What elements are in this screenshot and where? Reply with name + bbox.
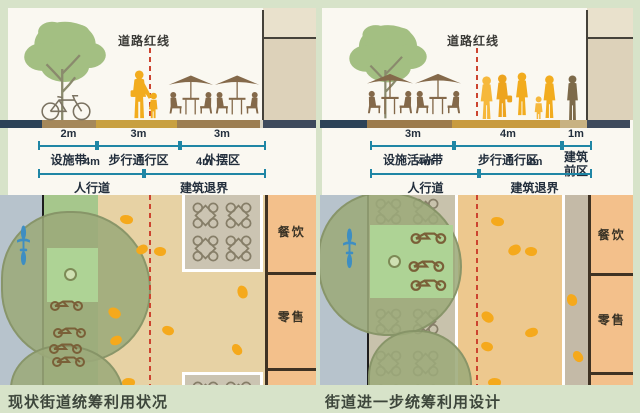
walk-zone-ground xyxy=(96,120,177,128)
dim-facility-belt: 2m 设施带 xyxy=(38,141,99,150)
dim-zone-label: 建筑退界 xyxy=(479,179,590,196)
dim-building-setback: 4m 建筑退界 xyxy=(142,169,266,178)
road-red-line-label: 道路红线 xyxy=(447,32,499,49)
plan-walk-zone xyxy=(458,195,562,385)
panel-improved-design: 道路红线 xyxy=(322,8,633,385)
seating-zone-ground xyxy=(177,120,260,128)
building-floor-line xyxy=(587,37,633,39)
parked-bike-icon xyxy=(408,232,452,245)
parked-bike-icon xyxy=(47,300,89,312)
shop-label-dining: 餐饮 xyxy=(268,223,317,240)
pedestrian-family-icon xyxy=(126,70,164,120)
roadway-ground xyxy=(320,120,367,128)
building-section xyxy=(263,8,316,120)
building-ground xyxy=(263,120,316,128)
building-floor-line xyxy=(263,37,316,39)
dim-zone-label: 人行道 xyxy=(40,179,144,196)
dim-walk-zone: 4m 步行通行区 xyxy=(452,141,564,150)
dim-sidewalk: 4m 人行道 xyxy=(38,169,146,178)
dim-building-setback: 4m 建筑退界 xyxy=(477,169,592,178)
plan-shop-strip: 餐饮 零售 xyxy=(268,195,317,385)
parked-bike-icon xyxy=(406,260,450,273)
seating-area-block xyxy=(182,195,263,272)
shop-label-dining: 餐饮 xyxy=(591,226,634,243)
dim-length: 4m xyxy=(454,128,562,140)
dim-facility-activity-belt: 3m 设施活动带 xyxy=(370,141,456,150)
parked-bike-icon xyxy=(408,279,452,292)
parked-bike-icon xyxy=(46,343,88,355)
roadway-ground xyxy=(0,120,42,128)
pedestrian-marker xyxy=(488,377,502,385)
dim-length: 3m xyxy=(97,128,180,140)
caption-improved: 街道进一步统筹利用设计 xyxy=(325,391,501,412)
shop-label-retail: 零售 xyxy=(591,311,634,328)
dim-length: 4m xyxy=(144,156,264,168)
dim-length: 1m xyxy=(562,128,590,140)
seating-area-block xyxy=(182,372,263,385)
panel-existing-condition: 道路红线 xyxy=(8,8,316,385)
standing-person-icon xyxy=(565,75,580,120)
building-section xyxy=(587,8,633,120)
dim-building-front: 1m 建筑前区 xyxy=(560,141,592,150)
pedestrians-walking-icon xyxy=(479,66,559,120)
building-wall-line xyxy=(262,10,264,120)
cyclist-plan-icon xyxy=(342,228,357,273)
road-red-line xyxy=(476,48,478,120)
dim-outdoor-seating: 3m 外摆区 xyxy=(178,141,266,150)
facility-belt-ground xyxy=(42,120,96,128)
table-pattern-icon xyxy=(193,203,250,260)
dim-walk-zone: 3m 步行通行区 xyxy=(95,141,182,150)
street-design-diagram: 道路红线 xyxy=(0,0,640,413)
plan-view-improved: 餐饮 零售 xyxy=(320,195,633,385)
building-ground xyxy=(587,120,630,128)
section-ground-strip xyxy=(0,120,316,128)
dim-sidewalk: 4m 人行道 xyxy=(370,169,481,178)
road-red-line-label: 道路红线 xyxy=(118,32,170,49)
facility-activity-ground xyxy=(367,120,452,128)
parked-bike-icon xyxy=(49,356,91,368)
plan-view-existing: 餐饮 零售 xyxy=(0,195,316,385)
dim-length: 3m xyxy=(372,128,454,140)
walk-zone-ground xyxy=(452,120,560,128)
dim-length: 4m xyxy=(372,156,479,168)
dim-zone-label: 建筑退界 xyxy=(144,179,264,196)
shop-divider-line xyxy=(265,272,316,275)
dim-length: 4m xyxy=(40,156,144,168)
dim-zone-label: 人行道 xyxy=(372,179,479,196)
building-front-ground xyxy=(560,120,587,128)
bicycle-icon xyxy=(40,93,92,121)
road-red-line-plan xyxy=(149,195,151,385)
shop-divider-line xyxy=(588,372,633,375)
tree-trunk-marker xyxy=(388,255,401,268)
section-ground-strip xyxy=(320,120,632,128)
pedestrian-marker xyxy=(122,377,136,385)
shop-divider-line xyxy=(588,273,633,276)
dim-length: 2m xyxy=(40,128,97,140)
dim-length: 4m xyxy=(479,156,590,168)
shop-label-retail: 零售 xyxy=(268,308,317,325)
cyclist-plan-icon xyxy=(16,225,31,270)
tree-trunk-marker xyxy=(64,268,77,281)
parked-bike-icon xyxy=(50,327,92,339)
caption-existing: 现状街道统筹利用状况 xyxy=(8,391,168,412)
dim-length: 3m xyxy=(180,128,264,140)
shop-divider-line xyxy=(265,368,316,371)
plan-shop-strip: 餐饮 零售 xyxy=(591,195,634,385)
road-red-line-plan xyxy=(476,195,478,385)
cafe-umbrella-tables-icon xyxy=(166,70,262,120)
building-wall-line xyxy=(586,10,588,120)
cafe-umbrella-tables-icon xyxy=(366,68,462,120)
